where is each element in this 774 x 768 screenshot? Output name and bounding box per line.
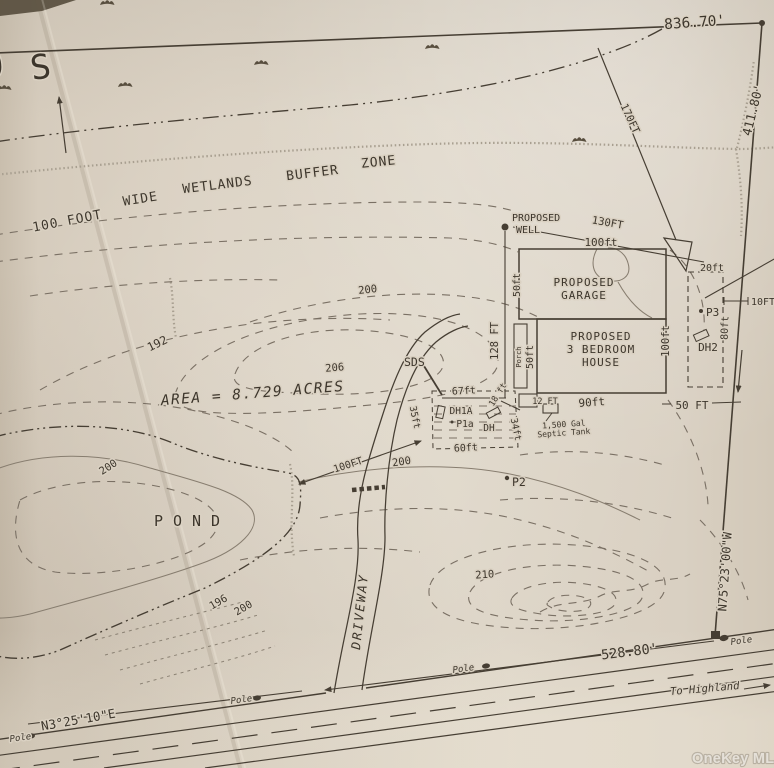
dh1a-label: DH1A xyxy=(450,406,473,417)
garage-label-2: GARAGE xyxy=(561,289,607,302)
area-label: AREA = 8.729 ACRES xyxy=(159,379,345,409)
contour-label-200d: 200 xyxy=(232,598,254,618)
sds-label: SDS xyxy=(404,355,425,369)
dim-house-right: 100ft xyxy=(660,325,672,357)
p3-marker xyxy=(699,309,703,313)
contour-label-200a: 200 xyxy=(358,283,378,297)
dim-sds-67: 67ft xyxy=(452,385,477,397)
corner-letter-o: O xyxy=(0,45,5,87)
site-plan-svg: O S 836.70' 411.80' N75°23'00"W 528.80' … xyxy=(0,0,774,768)
bearing-road: N3°25'10"E xyxy=(40,706,117,734)
dh2-label: DH2 xyxy=(698,341,718,354)
dh1a-symbol xyxy=(436,406,445,419)
pole-label-1: Pole xyxy=(9,732,32,745)
pole-label-3: Pole xyxy=(452,663,475,676)
bearing-right-boundary: N75°23'00"W xyxy=(715,531,735,612)
well-marker xyxy=(502,224,509,231)
dim-seg-170: 170FT xyxy=(618,102,643,136)
dh-symbol xyxy=(486,407,500,418)
dim-exp-50: 50 FT xyxy=(675,399,708,412)
driveway-label: DRIVEWAY xyxy=(348,573,371,651)
garage-label-1: PROPOSED xyxy=(554,276,615,289)
buffer-word-3: WETLANDS xyxy=(182,174,254,197)
buffer-word-4: BUFFER xyxy=(285,163,339,184)
buffer-word-1: 100 FOOT xyxy=(31,207,103,235)
pole-label-2: Pole xyxy=(230,694,253,707)
buffer-word-5: ZONE xyxy=(360,153,397,172)
p1a-label: P1a xyxy=(456,419,473,430)
dim-well-130: 130FT xyxy=(591,214,625,231)
p3-label: P3 xyxy=(706,306,719,319)
dim-house-side: 50ft xyxy=(525,345,536,369)
paper-blemishes xyxy=(0,0,247,768)
dim-garage-side: 50ft xyxy=(512,273,523,297)
p2-marker xyxy=(505,476,509,480)
dh2-symbol xyxy=(693,329,709,341)
buffer-word-2: WIDE xyxy=(122,189,159,209)
map-labels: O S 836.70' 411.80' N75°23'00"W 528.80' … xyxy=(0,13,774,767)
house-label-3: HOUSE xyxy=(582,356,620,369)
porch-label: Porch xyxy=(515,346,523,367)
marsh-symbols xyxy=(0,0,587,142)
survey-map-scan: O S 836.70' 411.80' N75°23'00"W 528.80' … xyxy=(0,0,774,768)
dim-frontage: 528.80' xyxy=(600,641,658,664)
dh-label: DH xyxy=(483,423,495,434)
p2-label: P2 xyxy=(512,475,526,489)
dim-exp-20: 20ft xyxy=(700,263,724,274)
well-label-2: WELL xyxy=(516,225,540,236)
dim-exp-80: 80ft xyxy=(720,316,732,340)
contour-label-196: 196 xyxy=(207,592,229,612)
contour-label-200b: 200 xyxy=(97,457,119,477)
dim-garage-top: 100ft xyxy=(584,236,617,249)
dim-septic-18: 18 ft xyxy=(487,381,509,408)
to-highland-label: To Highland xyxy=(670,680,741,698)
contour-label-192: 192 xyxy=(145,333,170,355)
dim-septic-12: 12 FT xyxy=(532,397,558,407)
dim-exp-10: 10FT xyxy=(751,297,774,308)
contour-label-210: 210 xyxy=(475,568,495,581)
pond-label: POND xyxy=(154,512,230,530)
pond-outline xyxy=(0,402,301,684)
sds-field-outline xyxy=(432,391,518,449)
well-label-1: PROPOSED xyxy=(512,213,560,224)
dim-right-boundary: 411.80' xyxy=(739,83,766,138)
property-boundary xyxy=(0,20,774,639)
dim-overall-128: 128 FT xyxy=(489,321,501,360)
house-label-1: PROPOSED xyxy=(571,330,632,343)
dim-sds-60: 60ft xyxy=(454,442,479,454)
dim-sds-35: 35ft xyxy=(407,405,423,430)
watermark: OneKey MLS xyxy=(692,751,774,767)
house-label-2: 3 BEDROOM xyxy=(567,343,636,356)
dim-top-boundary: 836.70' xyxy=(664,13,726,33)
pole-label-4: Pole xyxy=(730,635,753,648)
dim-house-bottom: 90ft xyxy=(578,395,605,410)
contour-label-206: 206 xyxy=(325,361,345,375)
driveway-outline xyxy=(299,314,468,693)
